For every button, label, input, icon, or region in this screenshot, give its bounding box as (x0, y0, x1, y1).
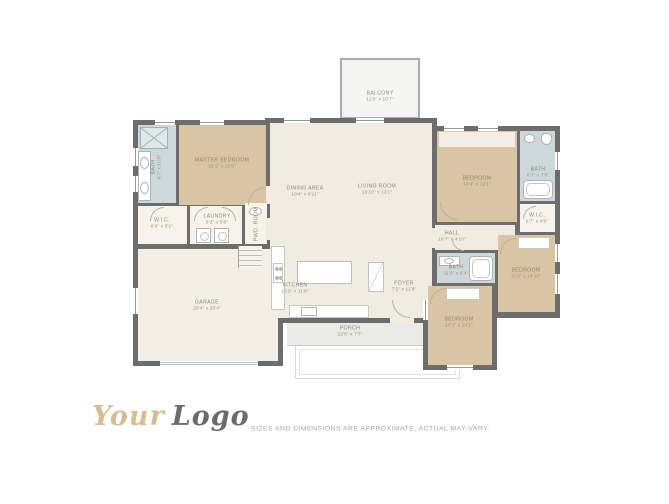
label-bath-hall: BATH 11'1" x 6'4" (420, 264, 493, 277)
window-bedroom-ne-2 (478, 126, 498, 131)
toilet-ne (541, 133, 552, 145)
label-porch: PORCH 22'6" x 7'7" (314, 325, 387, 338)
disclaimer-text: SIZES AND DIMENSIONS ARE APPROXIMATE, AC… (251, 425, 490, 432)
label-garage: GARAGE 20'4" x 20'4" (171, 299, 244, 312)
label-bedroom-s: BEDROOM 10'1" x 14'1" (423, 316, 496, 329)
label-foyer: FOYER 7'2" x 11'8" (368, 280, 441, 293)
label-bath-ne: BATH 6'7" x 7'8" (502, 166, 575, 179)
window-garage-left (133, 288, 138, 314)
label-master-bedroom: MASTER BEDROOM 15'1" x 12'8" (186, 157, 259, 170)
sink-ne (524, 134, 535, 143)
label-wic-ne: W.I.C. 6'7" x 4'9" (501, 212, 574, 225)
window-master-2 (200, 120, 224, 125)
master-sink-1 (140, 157, 149, 169)
label-bedroom-e: BEDROOM 11'6" x 14'10" (490, 267, 563, 280)
logo-your: Your (92, 401, 165, 432)
balcony-door (356, 118, 384, 123)
window-bedroom-ne-1 (444, 126, 464, 131)
label-pwd: PWD. ROOM (253, 188, 260, 261)
label-dining: DINING AREA 10'4" x 9'11" (269, 185, 342, 198)
label-living: LIVING ROOM 16'10" x 13'1" (341, 183, 414, 196)
label-laundry: LAUNDRY 6'2" x 5'8" (181, 213, 254, 226)
garage-door (160, 361, 258, 366)
washer (196, 228, 211, 243)
logo: YourLogo (92, 401, 250, 432)
room-bedroom-ne-closet-strip (439, 132, 515, 147)
master-sink-2 (140, 182, 149, 194)
logo-word: Logo (172, 401, 250, 432)
window-bedroom-e-1 (555, 244, 560, 262)
label-master-bath: BATH 6'7" x 10'0" (150, 131, 163, 204)
label-balcony: BALCONY 11'9" x 10'7" (344, 90, 417, 103)
floor-plan-page: BALCONY 11'9" x 10'7" MASTER BEDROOM 15'… (0, 0, 669, 504)
label-kitchen: KITCHEN 15'9" x 11'8" (259, 282, 332, 295)
room-balcony (340, 58, 420, 119)
window-dining (284, 118, 310, 123)
window-master-1 (155, 120, 175, 125)
label-hall: HALL 10'7" x 4'10" (416, 230, 489, 243)
window-bedroom-s (447, 365, 473, 370)
cooktop (273, 263, 283, 283)
opening-front-door (390, 318, 414, 323)
dryer (214, 228, 229, 243)
closet-bedroom-e (518, 237, 550, 249)
kitchen-island (297, 261, 352, 284)
kitchen-sink (301, 307, 317, 316)
bathtub-ne (523, 180, 553, 199)
opening-kitchen-laundry (266, 218, 270, 240)
closet-bedroom-s (446, 288, 480, 300)
